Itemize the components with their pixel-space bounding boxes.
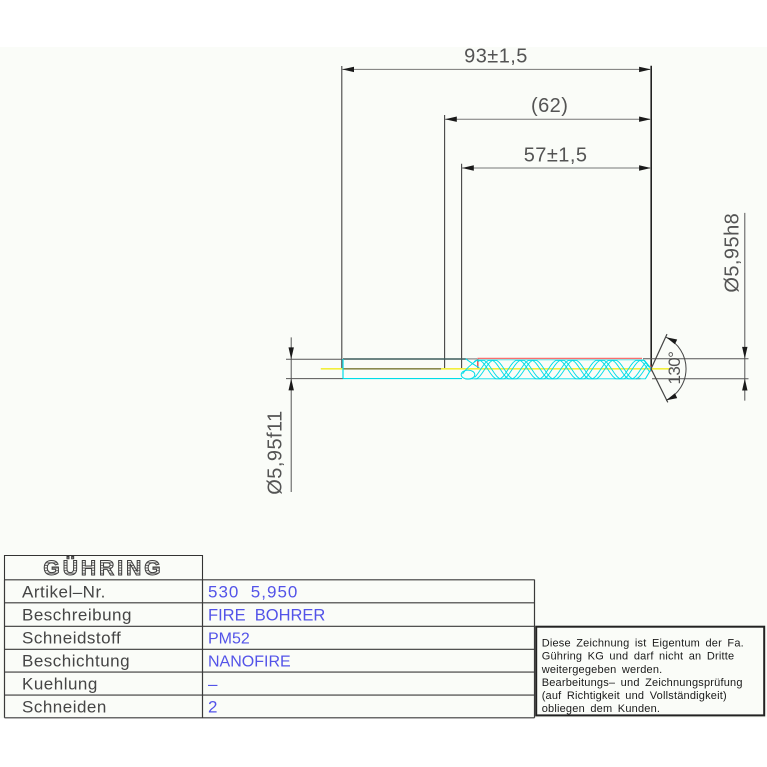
svg-text:Diese Zeichnung ist Eigentum d: Diese Zeichnung ist Eigentum der Fa. [542,638,744,650]
svg-text:–: – [208,675,218,694]
svg-text:Bearbeitungs– und Zeichnungspr: Bearbeitungs– und Zeichnungsprüfung [542,677,743,689]
svg-text:57±1,5: 57±1,5 [524,145,588,167]
svg-text:Schneidstoff: Schneidstoff [22,629,121,648]
svg-text:Beschreibung: Beschreibung [22,606,132,625]
svg-text:Artikel–Nr.: Artikel–Nr. [22,582,106,601]
svg-text:weitergegeben werden.: weitergegeben werden. [541,664,663,676]
svg-text:GÜHRING: GÜHRING [43,557,163,580]
svg-text:530 5,950: 530 5,950 [208,582,298,601]
svg-text:Beschichtung: Beschichtung [22,652,130,671]
svg-text:93±1,5: 93±1,5 [464,45,528,67]
svg-text:Ø5,95f11: Ø5,95f11 [265,410,287,494]
svg-text:PM52: PM52 [208,631,250,648]
svg-text:Schneiden: Schneiden [22,698,107,717]
svg-text:130°: 130° [665,352,684,385]
svg-text:obliegen dem Kunden.: obliegen dem Kunden. [542,703,661,715]
svg-text:2: 2 [208,698,217,717]
svg-text:Kuehlung: Kuehlung [22,675,98,694]
svg-text:(62): (62) [531,95,568,117]
svg-text:NANOFIRE: NANOFIRE [208,654,291,671]
svg-text:FIRE BOHRER: FIRE BOHRER [208,607,325,625]
svg-text:Gühring KG und darf nicht an D: Gühring KG und darf nicht an Dritte [542,651,735,663]
svg-text:Ø5,95h8: Ø5,95h8 [722,213,744,293]
svg-text:(auf Richtigkeit und Vollständ: (auf Richtigkeit und Vollständigkeit) [542,690,727,702]
